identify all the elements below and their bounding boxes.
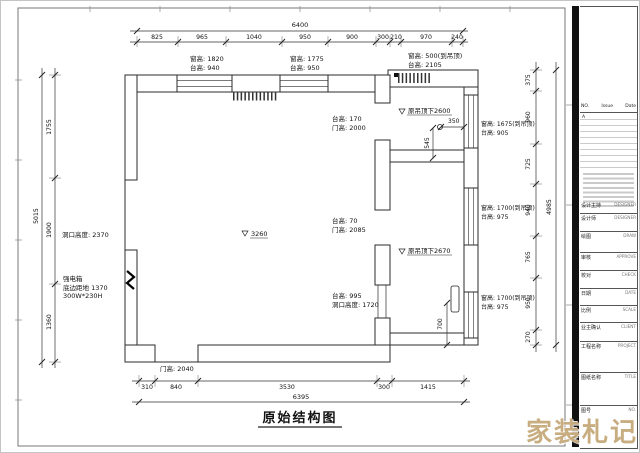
note-window: 台高: 2105 <box>408 60 442 69</box>
ceiling-height-label: 3260 <box>251 230 268 238</box>
row-label: 绘图 <box>581 233 591 240</box>
dim-right-seg: 375 <box>525 74 532 86</box>
sheet-frame <box>1 1 640 453</box>
title-block: NO. Issue Date A 设计主持 DESIGNER 设计师 DESIG… <box>580 6 638 449</box>
note-window: 窗高: 1820 <box>190 54 224 63</box>
dim-bottom-seg: 3530 <box>279 384 295 391</box>
titleblock-row: 图纸名称 TITLE <box>580 373 637 406</box>
row-label-en: CHECK <box>622 272 636 277</box>
row-label-en: TITLE <box>625 374 636 379</box>
revision-table-header: NO. Issue Date <box>580 104 637 113</box>
note-window: 窗高: 1675(到吊顶) <box>481 120 535 128</box>
note-window: 窗高: 500(到吊顶) <box>408 51 462 60</box>
dim-top-seg: 240 <box>451 34 463 41</box>
level-marker-icon <box>399 109 405 114</box>
note-opening: 台高: 170 <box>332 114 362 123</box>
dim-545: 545 <box>424 137 431 149</box>
note-window: 窗高: 1700(到吊顶) <box>481 294 535 302</box>
dim-bottom-seg: 310 <box>141 384 153 391</box>
row-label: 校对 <box>581 272 591 279</box>
note-window: 窗高: 1775 <box>290 54 324 63</box>
dim-left-seg: 1360 <box>46 314 53 330</box>
note-window: 台高: 975 <box>481 303 509 311</box>
row-label-en: CLIENT <box>621 324 636 329</box>
note-window: 窗高: 1700(到吊顶) <box>481 204 535 212</box>
note-window: 台高: 950 <box>290 63 320 72</box>
row-label-en: DESIGNER <box>614 202 636 207</box>
titleblock-row: 比例 SCALE <box>580 306 637 323</box>
dim-left-seg: 1900 <box>46 222 53 238</box>
dim-350: 350 <box>448 118 460 125</box>
note-electrical-box: 300W*230H <box>63 292 102 300</box>
rev-col-no: NO. <box>581 104 589 112</box>
titleblock-row: 校对 CHECK <box>580 271 637 289</box>
dim-top-seg: 825 <box>151 34 163 41</box>
row-label-en: APPROVE <box>616 254 636 259</box>
dim-top-seg: 970 <box>420 34 432 41</box>
dim-top-seg: 1040 <box>246 34 262 41</box>
dim-top-seg: 900 <box>346 34 358 41</box>
radiator-icon <box>451 286 459 312</box>
titleblock-row: 审核 APPROVE <box>580 253 637 271</box>
row-label: 业主确认 <box>581 324 601 331</box>
row-label: 比例 <box>581 307 591 314</box>
note-opening: 台高: 70 <box>332 216 358 225</box>
note-opening: 台高: 995 <box>332 291 362 300</box>
note-electrical-box: 强电箱 <box>63 274 83 283</box>
titleblock-row: 设计师 DESIGNER <box>580 214 637 232</box>
dim-bottom-total: 6395 <box>293 393 310 401</box>
titleblock-divider-bar <box>572 6 579 447</box>
row-label: 设计师 <box>581 215 596 222</box>
dim-right-total: 4985 <box>546 199 553 215</box>
drawing-sheet: 6400 825 965 1040 950 900 300 210 970 24… <box>0 0 640 453</box>
titleblock-row: 业主确认 CLIENT <box>580 323 637 342</box>
dim-right-seg: 725 <box>525 158 532 170</box>
floor-plan-svg: 6400 825 965 1040 950 900 300 210 970 24… <box>0 0 640 453</box>
level-marker-icon <box>399 249 405 254</box>
dim-bottom-seg: 840 <box>170 384 182 391</box>
dim-bottom-seg: 1415 <box>420 384 436 391</box>
hatch-end-block <box>394 73 398 77</box>
note-opening: 门高: 2085 <box>332 225 366 234</box>
dim-top-seg: 965 <box>196 34 208 41</box>
ceiling-height-label: 原吊顶下2670 <box>408 247 451 255</box>
row-label: 日期 <box>581 290 591 297</box>
row-label-en: SCALE <box>623 307 636 312</box>
note-window: 台高: 940 <box>190 63 220 72</box>
level-marker-icon <box>242 231 248 236</box>
row-label-en: DESIGNER <box>614 215 636 220</box>
row-label-en: DATE <box>625 290 636 295</box>
row-label: 审核 <box>581 254 591 261</box>
titleblock-row: 绘图 DRAW <box>580 232 637 253</box>
dim-top-total: 6400 <box>292 21 309 29</box>
dim-700: 700 <box>437 318 444 330</box>
ceiling-height-label: 原吊顶下2600 <box>408 107 451 115</box>
titleblock-row: 工程名称 PROJECT <box>580 342 637 373</box>
rev-col-date: Date <box>625 104 636 112</box>
row-label: 设计主持 <box>581 202 601 209</box>
note-electrical-box: 底边距地 1370 <box>63 283 108 292</box>
dim-top-seg: 950 <box>299 34 311 41</box>
note-window: 台高: 975 <box>481 213 509 221</box>
row-label-en: PROJECT <box>618 343 636 348</box>
row-label: 图纸名称 <box>581 374 601 381</box>
row-label: 工程名称 <box>581 343 601 350</box>
dim-top-seg: 300 <box>377 34 389 41</box>
note-opening: 洞口高度: 1720 <box>332 300 379 309</box>
note-door: 门高: 2040 <box>160 364 194 373</box>
watermark: 家装札记 <box>526 412 638 449</box>
row-label-en: DRAW <box>623 233 636 238</box>
revision-table-rules <box>580 114 637 170</box>
titleblock-row: 日期 DATE <box>580 289 637 306</box>
dim-right-seg: 270 <box>525 331 532 343</box>
note-window: 台高: 905 <box>481 129 509 137</box>
drawing-title: 原始结构图 <box>262 410 337 426</box>
titleblock-row: 设计主持 DESIGNER <box>580 201 637 214</box>
dim-left-total: 5015 <box>33 208 40 224</box>
drawing-frame <box>18 8 565 446</box>
rev-col-issue: Issue <box>601 104 613 112</box>
note-opening: 门高: 2000 <box>332 123 366 132</box>
dim-left-seg: 1755 <box>46 119 53 135</box>
dim-right-seg: 765 <box>525 251 532 263</box>
dim-top-seg: 210 <box>390 34 402 41</box>
note-opening: 洞口高度: 2370 <box>62 230 109 239</box>
dim-bottom-seg: 300 <box>378 384 390 391</box>
